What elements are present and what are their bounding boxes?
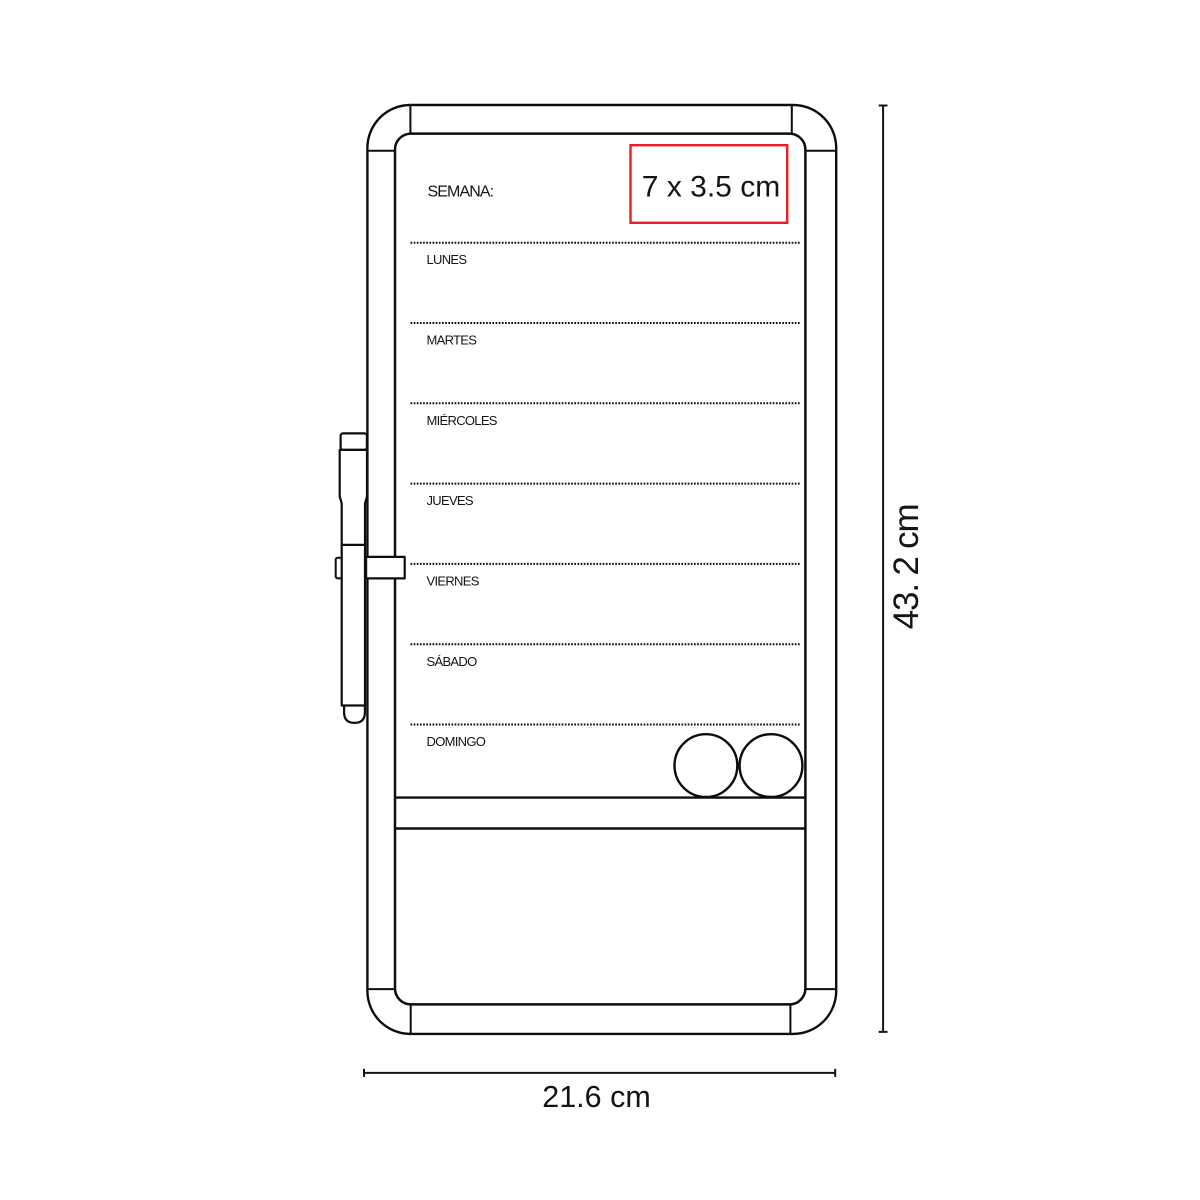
svg-text:SEMANA:: SEMANA: <box>428 184 494 201</box>
svg-text:MIÉRCOLES: MIÉRCOLES <box>427 413 498 428</box>
svg-text:DOMINGO: DOMINGO <box>427 734 486 749</box>
svg-text:LUNES: LUNES <box>427 252 468 267</box>
svg-text:43. 2 cm: 43. 2 cm <box>887 505 926 630</box>
svg-text:MARTES: MARTES <box>427 332 478 347</box>
svg-text:SÁBADO: SÁBADO <box>427 654 478 669</box>
svg-text:7 x 3.5 cm: 7 x 3.5 cm <box>642 171 780 204</box>
svg-text:VIERNES: VIERNES <box>427 573 480 588</box>
svg-text:JUEVES: JUEVES <box>427 493 474 508</box>
svg-text:21.6 cm: 21.6 cm <box>542 1080 651 1114</box>
